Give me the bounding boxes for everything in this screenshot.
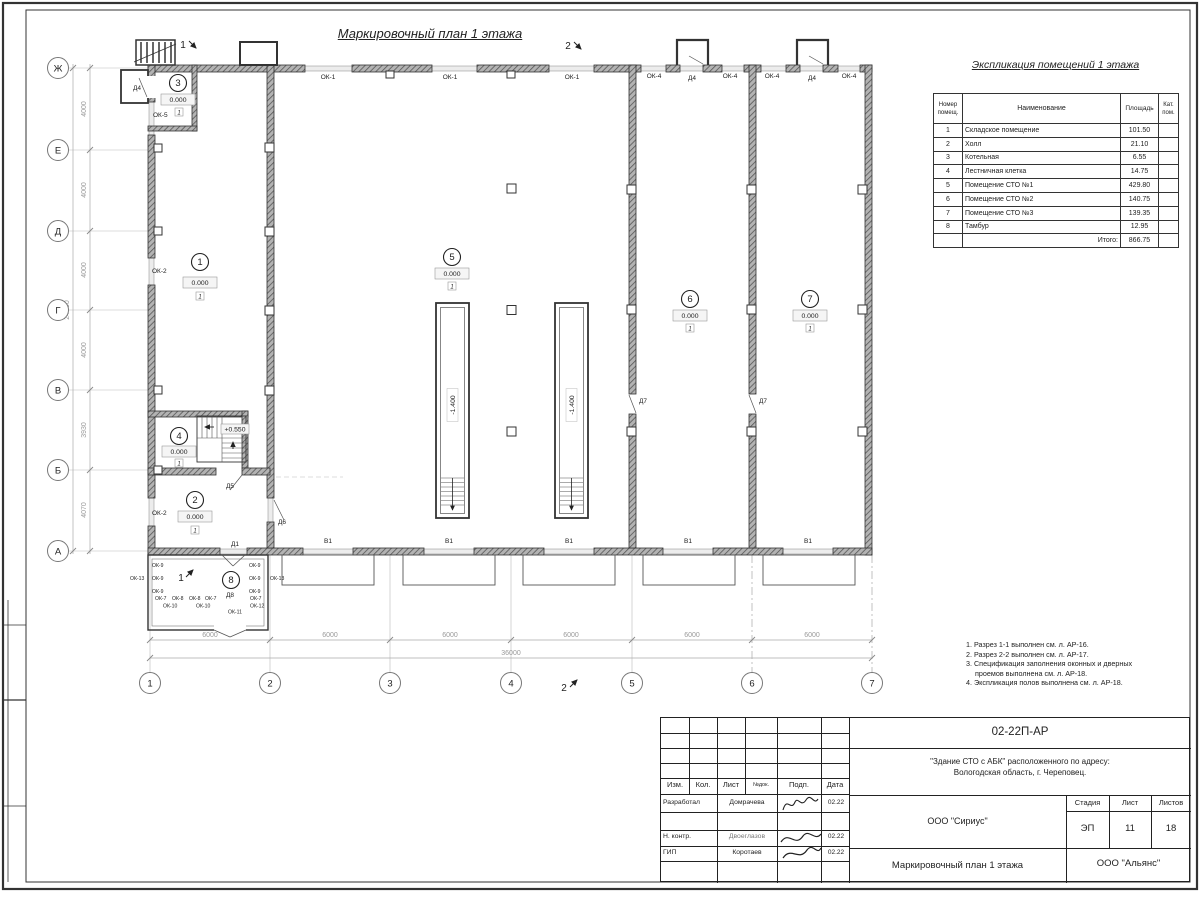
table-row: 7Помещение СТО №3139.35 [934, 206, 1179, 220]
svg-text:ОК-9: ОК-9 [152, 589, 164, 595]
svg-text:6000: 6000 [684, 632, 700, 639]
tb-name: Домрачева [717, 799, 777, 806]
tb-col-list: Лист [717, 780, 745, 789]
svg-text:4000: 4000 [81, 182, 88, 198]
note-line: проемов выполнена см. л. АР-18. [966, 669, 1196, 679]
svg-text:Д4: Д4 [688, 75, 696, 82]
company-name: ООО "Альянс" [1066, 858, 1191, 869]
tb-date: 02.22 [823, 833, 849, 840]
svg-text:Д7: Д7 [639, 398, 647, 405]
svg-text:6000: 6000 [563, 632, 579, 639]
svg-text:Д5: Д5 [226, 483, 234, 490]
svg-text:Ж: Ж [54, 64, 63, 75]
svg-text:ОК-4: ОК-4 [765, 73, 780, 80]
tb-col-data: Дата [821, 780, 849, 789]
svg-text:Д8: Д8 [226, 592, 234, 599]
svg-text:В: В [55, 386, 61, 397]
svg-text:0.000: 0.000 [681, 313, 698, 320]
signature [779, 794, 821, 814]
svg-text:1: 1 [147, 679, 152, 690]
svg-text:ОК-9: ОК-9 [152, 576, 164, 582]
svg-text:ОК-2: ОК-2 [152, 268, 167, 275]
tb-name: Двоеглазов [717, 833, 777, 840]
sheets-value: 18 [1151, 823, 1191, 834]
svg-text:ОК-9: ОК-9 [249, 576, 261, 582]
col-header-name: Наименование [963, 94, 1121, 124]
svg-text:Б: Б [55, 466, 61, 477]
svg-text:Д1: Д1 [231, 541, 239, 548]
tb-role: Разработал [663, 799, 717, 806]
stair-elevation: +0.550 [221, 424, 249, 434]
svg-text:5: 5 [629, 679, 634, 690]
svg-text:1: 1 [193, 529, 196, 535]
svg-text:А: А [55, 547, 62, 558]
table-row: 2Холл21.10 [934, 137, 1179, 151]
col-header-kat: Кат.пом. [1159, 94, 1179, 124]
stage-value: ЭП [1066, 823, 1109, 834]
svg-text:6: 6 [749, 679, 754, 690]
note-line: 2. Разрез 2-2 выполнен см. л. АР-17. [966, 650, 1196, 660]
svg-text:2: 2 [561, 683, 567, 694]
signature [777, 828, 823, 864]
table-row: 1Складское помещение101.50 [934, 124, 1179, 138]
notes: 1. Разрез 1-1 выполнен см. л. АР-16. 2. … [966, 640, 1196, 688]
svg-text:ОК-7: ОК-7 [205, 596, 217, 602]
table-row: 4Лестничная клетка14.75 [934, 165, 1179, 179]
svg-text:4: 4 [176, 431, 181, 442]
svg-text:2: 2 [267, 679, 272, 690]
svg-text:ОК-9: ОК-9 [152, 563, 164, 569]
title-block: Изм. Кол. Лист №док. Подп. Дата Разработ… [660, 717, 1190, 882]
tb-name: Коротаев [717, 849, 777, 856]
room-markers: 1 2 3 4 5 6 7 8 0.000 0.000 0.000 0.000 [161, 75, 827, 589]
col-header-area: Площадь [1121, 94, 1159, 124]
svg-text:ОК-9: ОК-9 [249, 589, 261, 595]
tb-role: ГИП [663, 849, 717, 856]
svg-text:3930: 3930 [81, 422, 88, 438]
tb-date: 02.22 [823, 849, 849, 856]
svg-text:ОК-8: ОК-8 [189, 596, 201, 602]
svg-text:Д4: Д4 [133, 85, 141, 92]
svg-text:Д4: Д4 [808, 75, 816, 82]
svg-text:Д7: Д7 [759, 398, 767, 405]
gate-aprons [282, 555, 855, 585]
inspection-pits: -1.400 -1.400 [436, 303, 588, 518]
svg-text:7: 7 [807, 294, 812, 305]
svg-text:8: 8 [228, 575, 233, 586]
svg-text:В1: В1 [804, 538, 812, 545]
svg-text:4070: 4070 [81, 502, 88, 518]
tb-col-izm: Изм. [661, 780, 689, 789]
table-row: 8Тамбур12.95 [934, 220, 1179, 234]
stairwell [197, 416, 246, 462]
room-schedule-table: Номерпомещ. Наименование Площадь Кат.пом… [933, 93, 1179, 248]
svg-text:-1.400: -1.400 [569, 395, 576, 414]
svg-text:ОК-4: ОК-4 [647, 73, 662, 80]
svg-text:ОК-4: ОК-4 [723, 73, 738, 80]
svg-text:ОК-2: ОК-2 [152, 510, 167, 517]
note-line: 4. Экспликация полов выполнена см. л. АР… [966, 678, 1196, 688]
svg-text:1: 1 [197, 257, 202, 268]
svg-text:Д: Д [55, 227, 62, 238]
svg-text:ОК-7: ОК-7 [250, 596, 262, 602]
table-row: 3Котельная6.55 [934, 151, 1179, 165]
svg-text:0.000: 0.000 [186, 514, 203, 521]
svg-text:6: 6 [687, 294, 692, 305]
project-line1: "Здание СТО с АБК" расположенного по адр… [853, 757, 1187, 766]
svg-text:6000: 6000 [202, 632, 218, 639]
svg-text:ОК-1: ОК-1 [443, 74, 458, 81]
note-line: 3. Спецификация заполнения оконных и две… [966, 659, 1196, 669]
sheet-value: 11 [1109, 823, 1151, 834]
doc-number: 02-22П-АР [849, 726, 1191, 738]
svg-text:4000: 4000 [81, 342, 88, 358]
svg-text:1: 1 [177, 462, 180, 468]
svg-text:Д6: Д6 [278, 519, 286, 526]
svg-text:В1: В1 [684, 538, 692, 545]
tb-role: Н. контр. [663, 833, 717, 840]
svg-text:0.000: 0.000 [191, 280, 208, 287]
svg-text:ОК-9: ОК-9 [249, 563, 261, 569]
schedule-total-row: Итого:866.75 [934, 234, 1179, 248]
tb-date: 02.22 [823, 799, 849, 806]
svg-text:ОК-1: ОК-1 [321, 74, 336, 81]
svg-text:4: 4 [508, 679, 513, 690]
svg-text:6000: 6000 [442, 632, 458, 639]
drawing-sheet: Маркировочный план 1 этажа [0, 0, 1200, 900]
sheets-label: Листов [1151, 798, 1191, 807]
svg-text:+0.550: +0.550 [225, 427, 246, 434]
svg-text:0.000: 0.000 [443, 271, 460, 278]
org-name: ООО "Сириус" [849, 816, 1066, 826]
svg-text:4000: 4000 [81, 262, 88, 278]
svg-text:ОК-10: ОК-10 [163, 604, 177, 610]
sheet-label: Лист [1109, 798, 1151, 807]
schedule-title: Экспликация помещений 1 этажа [933, 59, 1178, 71]
svg-text:Г: Г [55, 306, 60, 317]
svg-text:2: 2 [192, 495, 197, 506]
svg-text:1: 1 [450, 285, 453, 291]
svg-text:-1.400: -1.400 [450, 395, 457, 414]
door-leaders [230, 395, 756, 520]
svg-text:ОК-11: ОК-11 [228, 610, 242, 616]
svg-text:1: 1 [180, 40, 186, 51]
svg-text:6000: 6000 [322, 632, 338, 639]
svg-text:В1: В1 [324, 538, 332, 545]
svg-text:ОК-5: ОК-5 [153, 112, 168, 119]
sheet-name: Маркировочный план 1 этажа [849, 860, 1066, 871]
svg-text:7: 7 [869, 679, 874, 690]
svg-text:0.000: 0.000 [169, 97, 186, 104]
svg-text:ОК-7: ОК-7 [155, 596, 167, 602]
svg-text:1: 1 [198, 295, 201, 301]
svg-text:1: 1 [688, 327, 691, 333]
svg-text:ОК-12: ОК-12 [250, 604, 264, 610]
svg-text:ОК-8: ОК-8 [172, 596, 184, 602]
col-header-num: Номерпомещ. [934, 94, 963, 124]
note-line: 1. Разрез 1-1 выполнен см. л. АР-16. [966, 640, 1196, 650]
svg-text:1: 1 [808, 327, 811, 333]
svg-text:Е: Е [55, 146, 61, 157]
section-markers: 1 1 2 2 [178, 40, 581, 694]
tb-col-ndoc: №док. [745, 782, 777, 788]
svg-text:ОК-13: ОК-13 [270, 576, 284, 582]
svg-text:ОК-10: ОК-10 [196, 604, 210, 610]
schedule-header-row: Номерпомещ. Наименование Площадь Кат.пом… [934, 94, 1179, 124]
table-row: 5Помещение СТО №1429.80 [934, 179, 1179, 193]
table-row: 6Помещение СТО №2140.75 [934, 192, 1179, 206]
svg-text:2: 2 [565, 41, 571, 52]
svg-text:6000: 6000 [804, 632, 820, 639]
svg-text:1: 1 [178, 573, 184, 584]
svg-text:ОК-1: ОК-1 [565, 74, 580, 81]
svg-text:0.000: 0.000 [801, 313, 818, 320]
svg-text:В1: В1 [565, 538, 573, 545]
project-line2: Вологодская область, г. Череповец. [853, 768, 1187, 777]
svg-text:0.000: 0.000 [170, 449, 187, 456]
tb-col-podp: Подп. [777, 780, 821, 789]
svg-text:36000: 36000 [501, 650, 521, 657]
building-walls [148, 65, 872, 555]
svg-text:1: 1 [177, 111, 180, 117]
opening-labels: ОК-1 ОК-1 ОК-1 ОК-4 ОК-4 ОК-4 ОК-4 Д4 Д4… [130, 73, 857, 616]
svg-text:ОК-4: ОК-4 [842, 73, 857, 80]
svg-text:3: 3 [175, 78, 180, 89]
svg-text:3: 3 [387, 679, 392, 690]
svg-text:4000: 4000 [81, 101, 88, 117]
svg-text:5: 5 [449, 252, 454, 263]
svg-text:В1: В1 [445, 538, 453, 545]
svg-text:ОК-13: ОК-13 [130, 576, 144, 582]
tb-col-kol: Кол. [689, 780, 717, 789]
stage-label: Стадия [1066, 798, 1109, 807]
